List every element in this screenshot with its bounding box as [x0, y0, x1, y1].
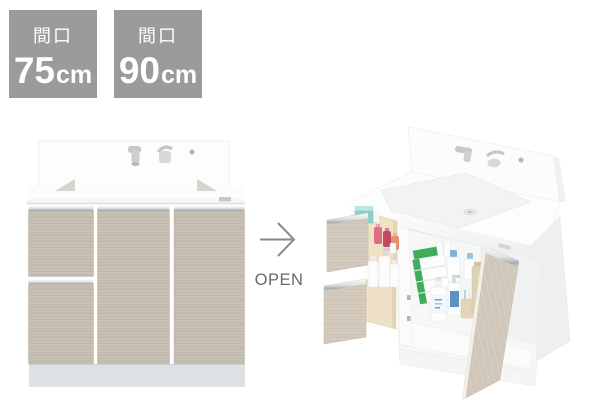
cabinet-door-right	[174, 206, 245, 364]
cabinet-drawer-top-left	[29, 206, 94, 277]
kick-plate-line	[29, 364, 245, 365]
product-comparison-figure: 間口 75 cm 間口 90 cm	[0, 0, 600, 420]
white-bottle	[390, 264, 399, 287]
cabinet-door-middle	[98, 206, 170, 364]
door-handle-rail	[174, 206, 245, 211]
cabinet-drawer-bottom-left	[29, 280, 94, 365]
door-handle-rail	[98, 206, 170, 211]
soap-dispenser-knob	[189, 149, 194, 154]
white-bottle	[368, 261, 378, 287]
drawer-box-side	[392, 287, 396, 329]
brand-tag	[219, 197, 231, 202]
white-bottle	[390, 243, 396, 253]
width-badge-label: 間口	[138, 27, 178, 45]
width-badge-75cm: 間口 75 cm	[9, 10, 97, 98]
vanity-closed-photo	[25, 138, 247, 390]
width-badge-label: 間口	[33, 27, 73, 45]
width-badge-unit: cm	[161, 63, 197, 88]
open-state-label: OPEN	[252, 271, 306, 290]
width-badge-unit: cm	[56, 63, 92, 88]
hinge	[407, 316, 411, 321]
bottle	[444, 240, 451, 259]
cosmetic-bottle	[374, 227, 382, 244]
width-badge-value: 90	[119, 52, 160, 89]
drawer-box	[366, 280, 396, 329]
counter-front-edge	[27, 196, 245, 204]
hinge	[407, 295, 411, 300]
right-arrow-icon	[259, 220, 299, 260]
teal-lid	[355, 206, 373, 211]
white-bottle	[379, 256, 390, 287]
drain-cap	[467, 211, 473, 214]
width-badge-90cm: 間口 90 cm	[114, 10, 202, 98]
width-badge-value: 75	[14, 52, 55, 89]
counter-shadow-line	[27, 203, 245, 204]
width-badge-value-row: 75 cm	[14, 52, 92, 89]
soap-dispenser-knob	[518, 157, 523, 162]
drawer-handle-rail	[29, 280, 94, 285]
width-badge-value-row: 90 cm	[119, 52, 197, 89]
drawer-handle-rail	[29, 206, 94, 211]
vanity-open-photo	[303, 110, 597, 412]
kick-plate	[29, 364, 245, 387]
